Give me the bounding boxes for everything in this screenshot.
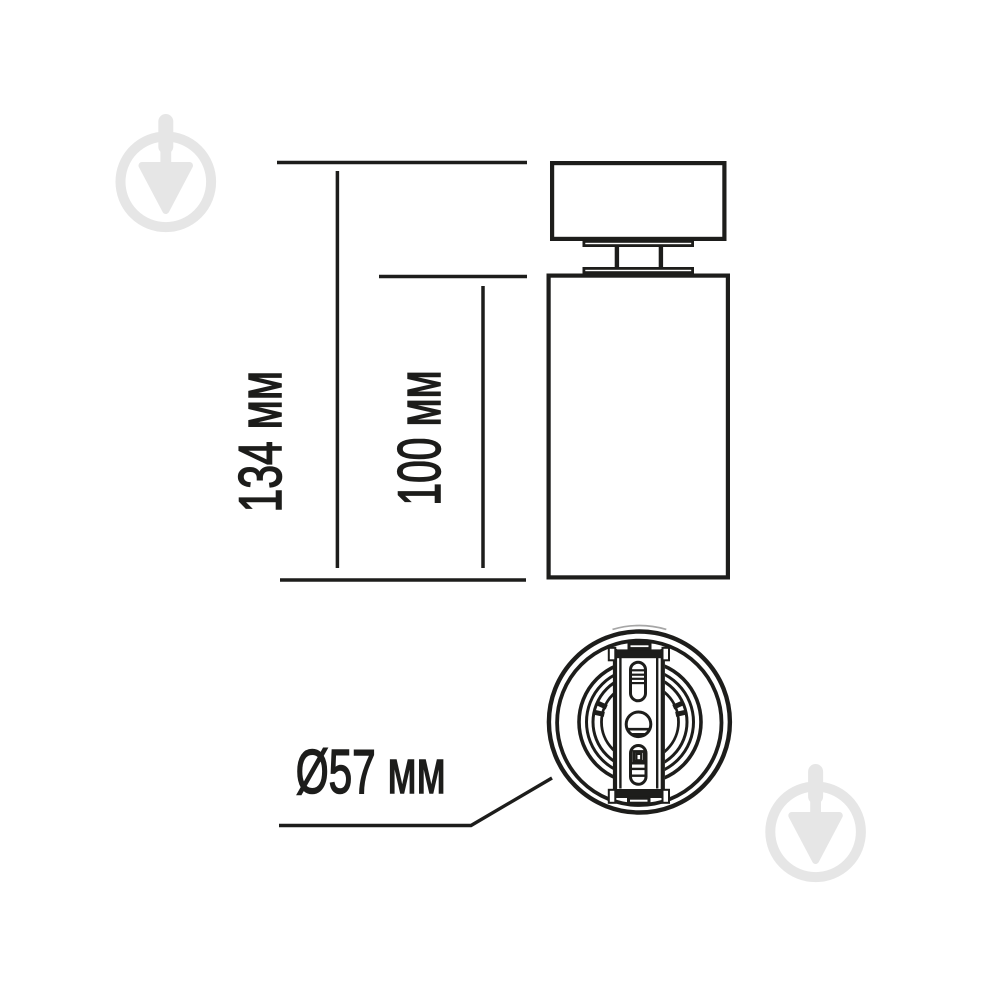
svg-text:134 мм: 134 мм xyxy=(228,371,295,512)
svg-text:Ø57 мм: Ø57 мм xyxy=(296,738,446,807)
svg-text:100 мм: 100 мм xyxy=(386,370,453,505)
